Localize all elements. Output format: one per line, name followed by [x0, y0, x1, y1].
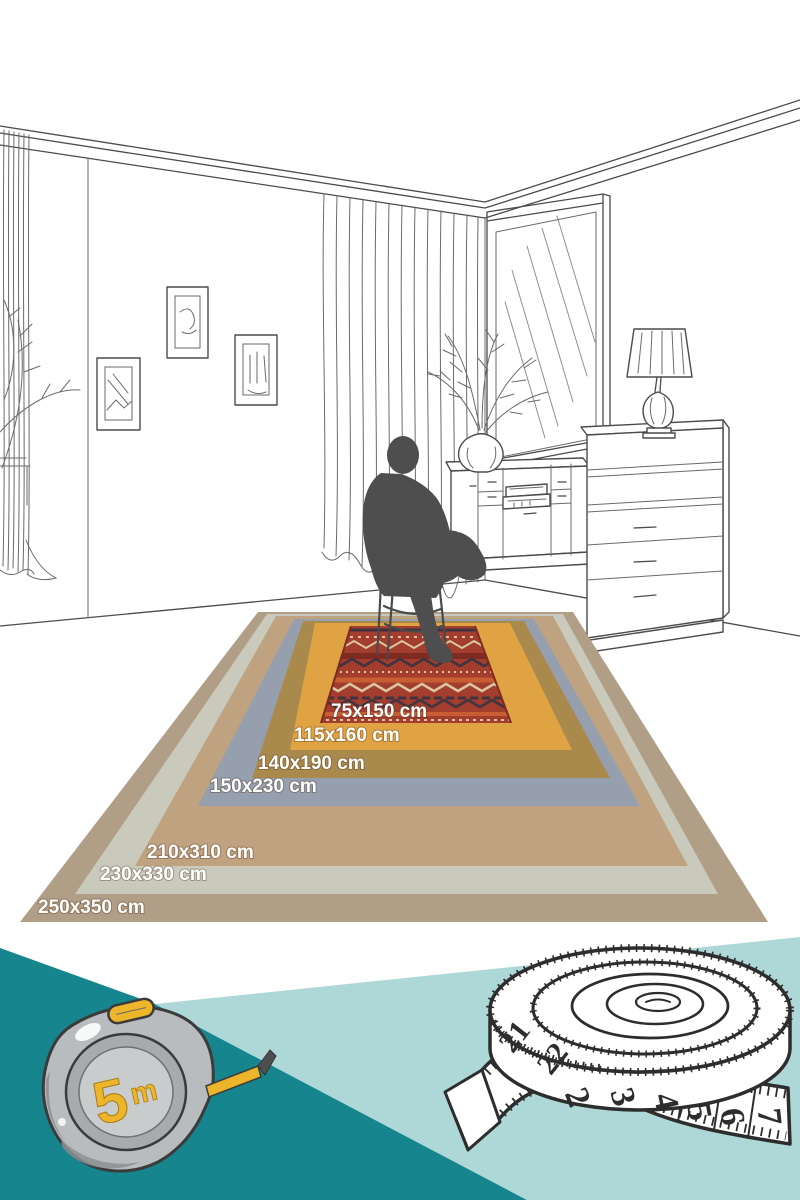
- rug-size-label-230x330: 230x330 cm: [100, 864, 207, 885]
- scene: 75x150 cm 115x160 cm 140x190 cm 150x230 …: [0, 0, 800, 1200]
- books: [503, 484, 550, 509]
- rug-size-label-75x150: 75x150 cm: [331, 701, 427, 722]
- person-head: [387, 436, 419, 474]
- picture-frame-1: [167, 287, 208, 358]
- rug-size-label-250x350: 250x350 cm: [38, 897, 145, 918]
- picture-frame-2: [97, 358, 140, 430]
- tape-measure-highlight-dot: [58, 1118, 66, 1126]
- rug-size-guide-image: 75x150 cm 115x160 cm 140x190 cm 150x230 …: [0, 0, 800, 1200]
- tailor-tape-coil-center: [636, 993, 680, 1011]
- rug-size-label-210x310: 210x310 cm: [147, 842, 254, 863]
- rug-size-label-150x230: 150x230 cm: [210, 776, 317, 797]
- shelf-unit: [581, 420, 729, 652]
- rug-size-label-115x160: 115x160 cm: [294, 725, 400, 746]
- picture-frame-3: [235, 335, 277, 405]
- rug-size-label-140x190: 140x190 cm: [258, 753, 365, 774]
